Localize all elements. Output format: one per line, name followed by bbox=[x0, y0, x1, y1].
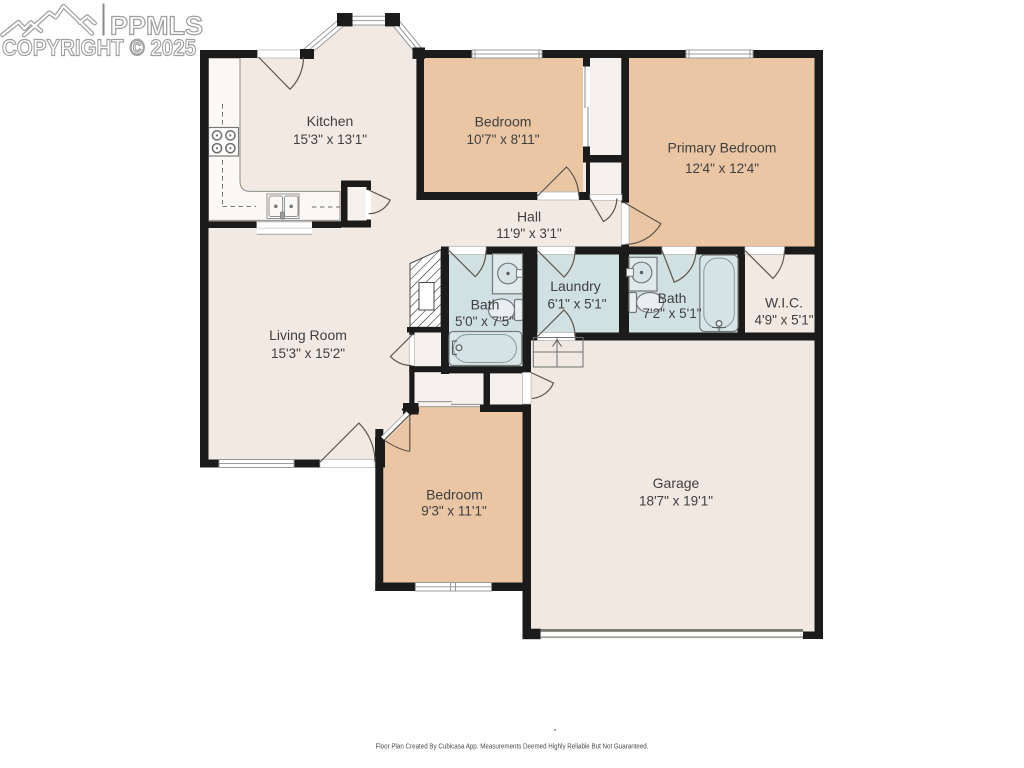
svg-text:10'7" x 8'11": 10'7" x 8'11" bbox=[466, 132, 539, 147]
svg-text:Primary Bedroom: Primary Bedroom bbox=[668, 140, 777, 156]
svg-text:18'7" x 19'1": 18'7" x 19'1" bbox=[639, 494, 713, 509]
svg-text:Bedroom: Bedroom bbox=[475, 114, 532, 130]
svg-text:Kitchen: Kitchen bbox=[307, 113, 354, 129]
svg-text:COPYRIGHT © 2025: COPYRIGHT © 2025 bbox=[2, 35, 196, 61]
svg-text:Bath: Bath bbox=[471, 297, 500, 313]
svg-text:12'4" x 12'4": 12'4" x 12'4" bbox=[685, 161, 759, 176]
svg-text:Living Room: Living Room bbox=[269, 327, 347, 343]
svg-text:6'1" x 5'1": 6'1" x 5'1" bbox=[547, 297, 606, 312]
svg-text:7'2" x 5'1": 7'2" x 5'1" bbox=[642, 306, 701, 321]
svg-text:Laundry: Laundry bbox=[550, 278, 601, 294]
svg-text:Bath: Bath bbox=[658, 290, 687, 306]
svg-text:15'3" x 13'1": 15'3" x 13'1" bbox=[293, 132, 367, 147]
svg-text:15'3" x 15'2": 15'3" x 15'2" bbox=[271, 346, 345, 361]
svg-text:4'9" x 5'1": 4'9" x 5'1" bbox=[754, 313, 813, 328]
svg-text:Garage: Garage bbox=[653, 475, 700, 491]
svg-text:9'3" x 11'1": 9'3" x 11'1" bbox=[421, 504, 487, 519]
svg-text:W.I.C.: W.I.C. bbox=[765, 295, 803, 311]
svg-text:Hall: Hall bbox=[517, 209, 541, 225]
svg-text:Floor Plan Created By Cubicasa: Floor Plan Created By Cubicasa App. Meas… bbox=[376, 744, 649, 751]
svg-text:11'9" x 3'1": 11'9" x 3'1" bbox=[496, 226, 562, 241]
svg-text:5'0" x 7'5": 5'0" x 7'5" bbox=[455, 314, 514, 329]
svg-text:Bedroom: Bedroom bbox=[426, 487, 483, 503]
